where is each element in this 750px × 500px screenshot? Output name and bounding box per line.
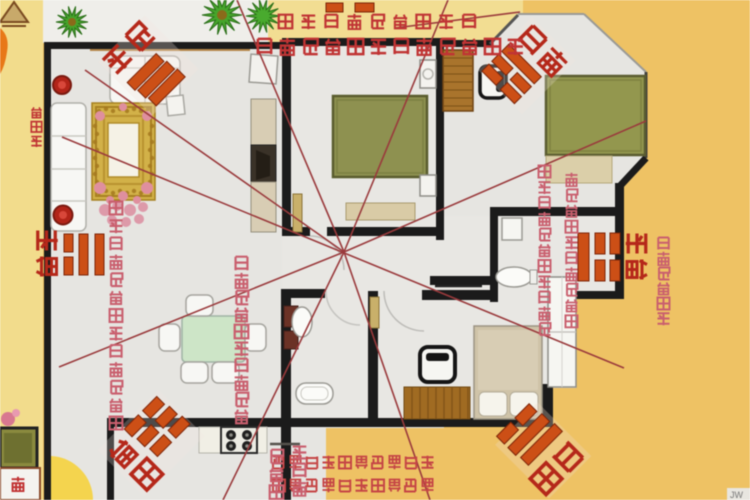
svg-text:JW: JW	[730, 490, 744, 500]
